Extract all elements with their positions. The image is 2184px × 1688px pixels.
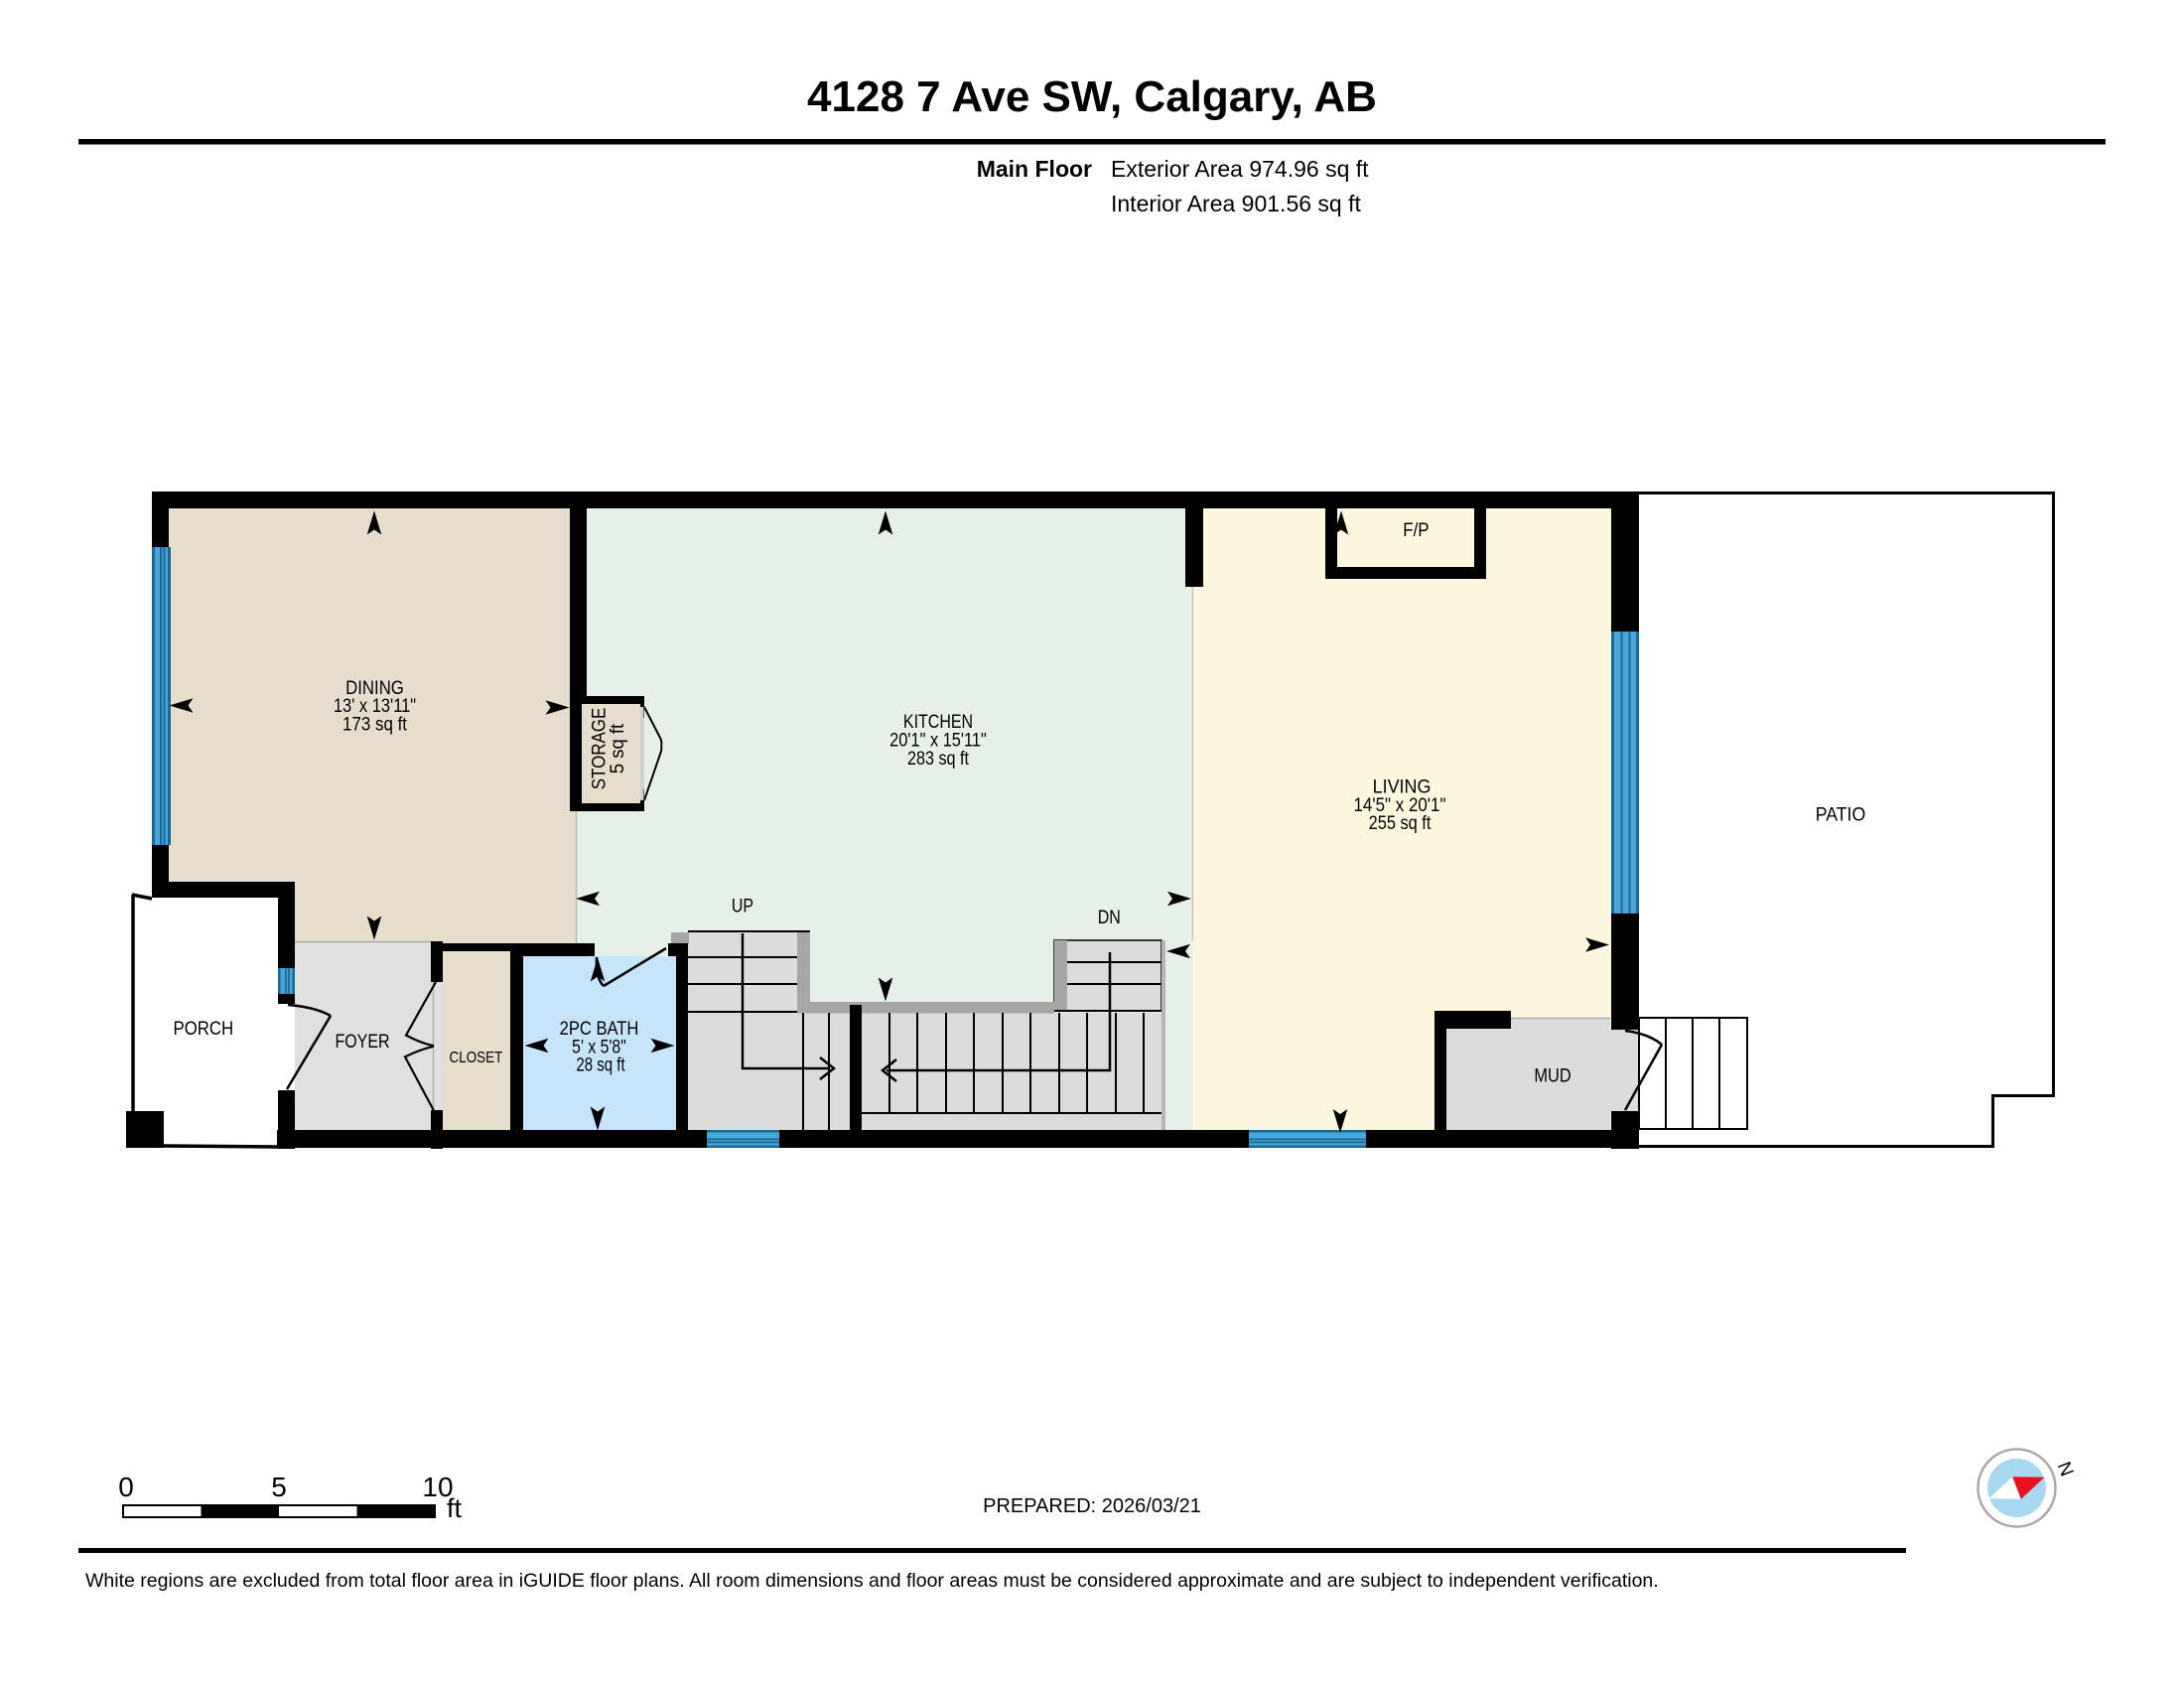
svg-text:Exterior Area 974.96 sq ft: Exterior Area 974.96 sq ft xyxy=(1111,156,1369,182)
svg-text:STORAGE: STORAGE xyxy=(587,708,609,790)
svg-text:4128 7 Ave SW, Calgary, AB: 4128 7 Ave SW, Calgary, AB xyxy=(807,72,1377,121)
svg-text:Main Floor: Main Floor xyxy=(977,156,1092,182)
svg-text:CLOSET: CLOSET xyxy=(450,1050,503,1066)
svg-text:White regions are excluded fro: White regions are excluded from total fl… xyxy=(85,1570,1659,1592)
svg-text:PORCH: PORCH xyxy=(174,1018,234,1039)
svg-text:255 sq ft: 255 sq ft xyxy=(1369,812,1432,834)
svg-text:PREPARED: 2026/03/21: PREPARED: 2026/03/21 xyxy=(983,1495,1201,1517)
svg-text:28 sq ft: 28 sq ft xyxy=(576,1054,624,1075)
svg-text:5: 5 xyxy=(271,1472,287,1502)
svg-text:F/P: F/P xyxy=(1403,518,1429,540)
svg-text:UP: UP xyxy=(732,895,753,916)
svg-text:5 sq ft: 5 sq ft xyxy=(608,723,629,774)
svg-text:283 sq ft: 283 sq ft xyxy=(907,748,969,770)
svg-text:DN: DN xyxy=(1098,907,1121,928)
svg-text:PATIO: PATIO xyxy=(1816,803,1866,825)
svg-text:Interior Area 901.56 sq ft: Interior Area 901.56 sq ft xyxy=(1111,191,1361,216)
svg-text:MUD: MUD xyxy=(1534,1064,1570,1086)
svg-text:0: 0 xyxy=(118,1472,134,1502)
svg-text:FOYER: FOYER xyxy=(335,1031,389,1053)
svg-text:173 sq ft: 173 sq ft xyxy=(342,712,407,734)
svg-text:ft: ft xyxy=(447,1493,463,1523)
